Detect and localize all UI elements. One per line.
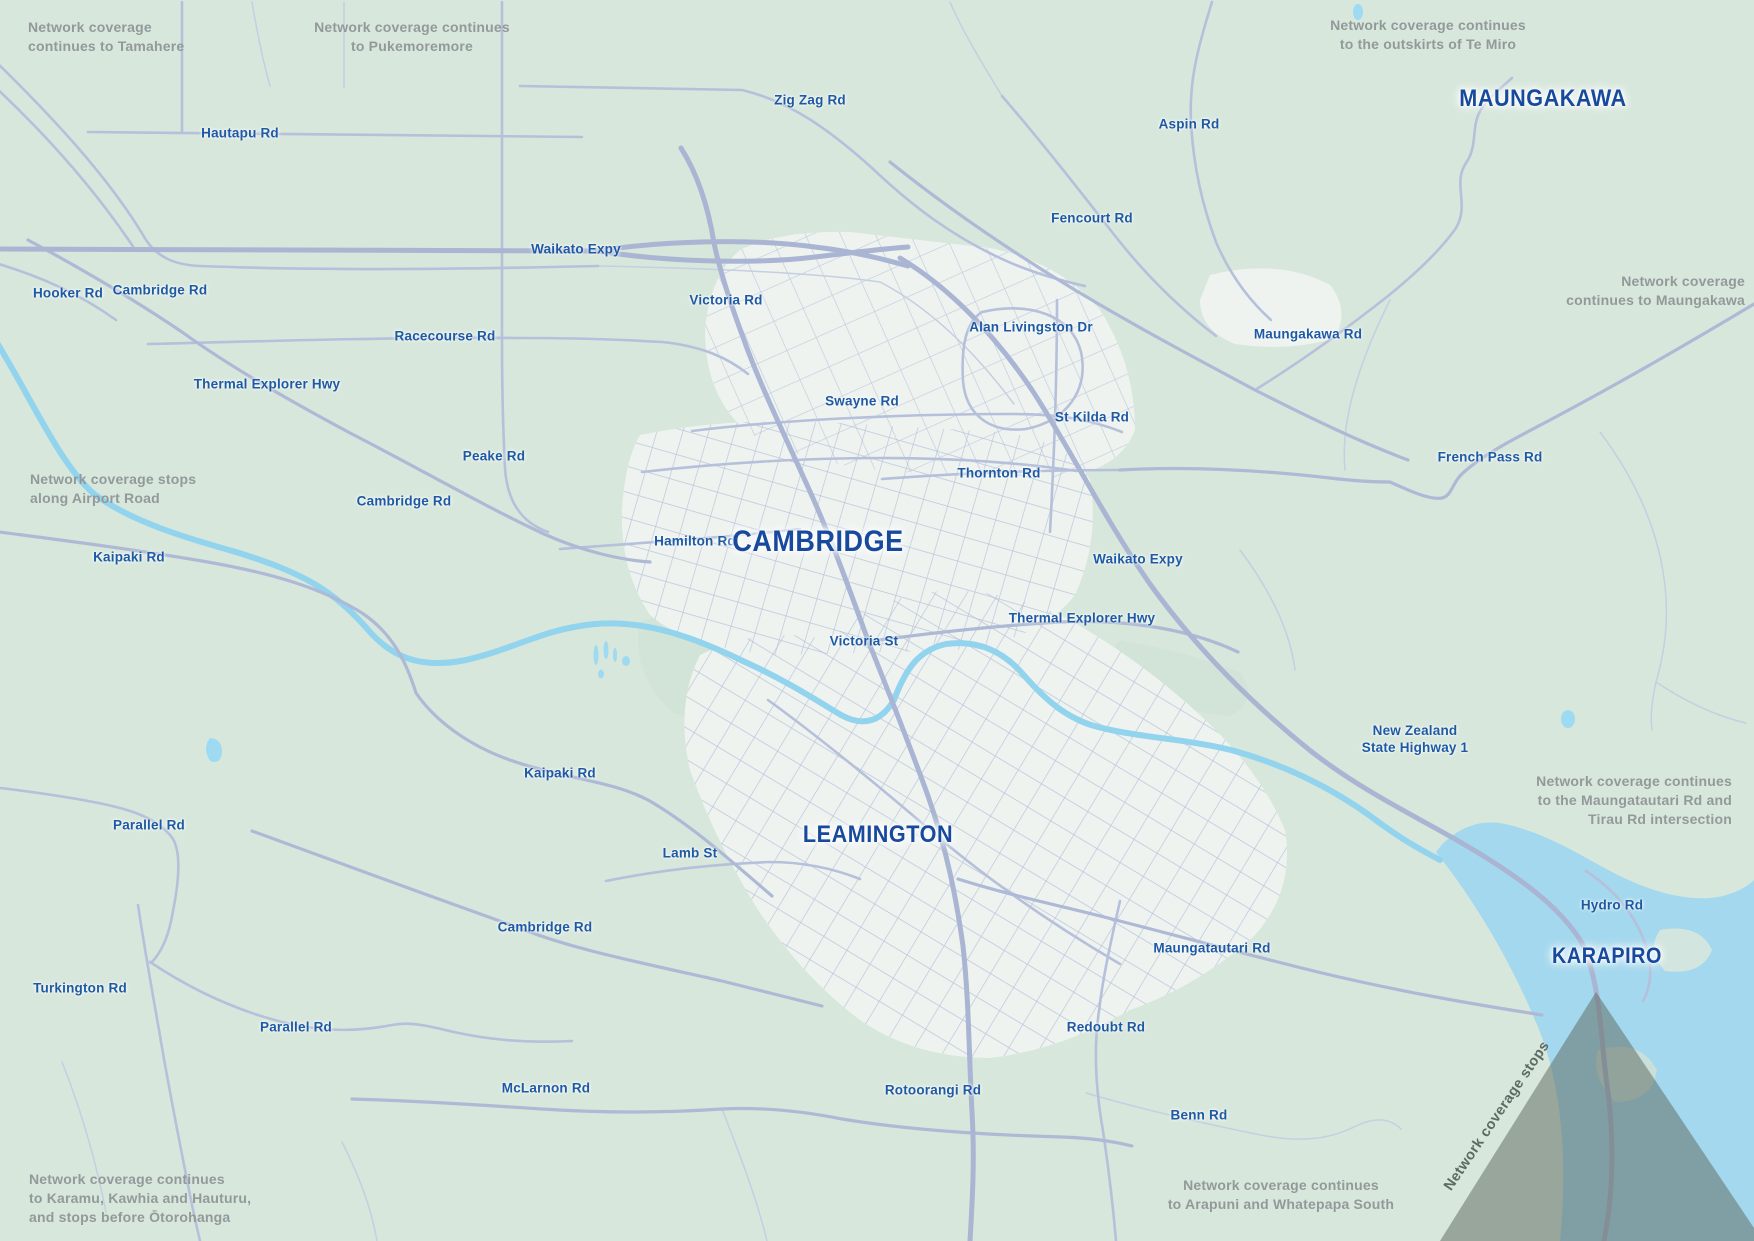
network-coverage-map: Network coverage continues to TamahereNe… — [0, 0, 1754, 1241]
map-canvas — [0, 0, 1754, 1241]
